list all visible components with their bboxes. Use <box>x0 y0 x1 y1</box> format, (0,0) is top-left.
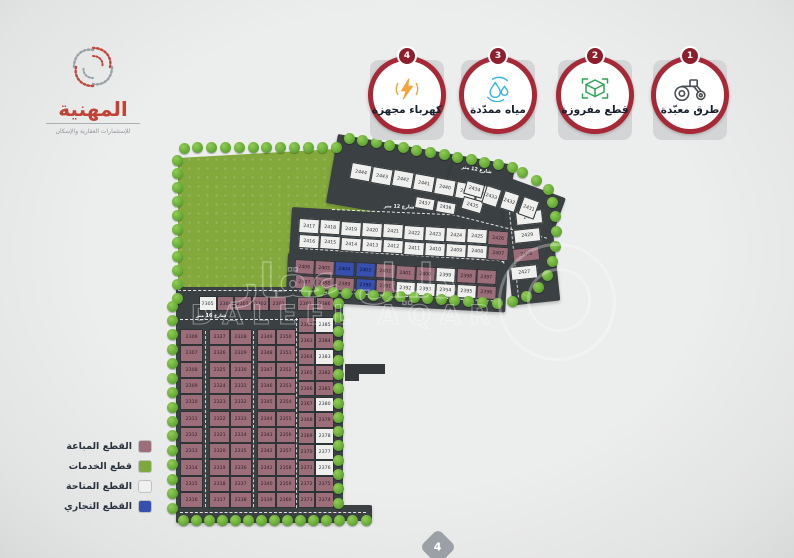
commercial-color-chip <box>138 500 152 513</box>
plot-number: 2397 <box>480 274 492 279</box>
tree-icon <box>331 142 342 153</box>
plot-number: 2357 <box>280 449 292 454</box>
tree-icon <box>333 469 344 480</box>
tree-icon <box>507 162 518 173</box>
plot-number: 2314 <box>186 465 198 470</box>
plot-2362[interactable]: 2362 <box>298 317 315 333</box>
plot-2338[interactable]: 2338 <box>230 492 252 508</box>
plot-number: 2349 <box>261 335 273 340</box>
plot-number: 2358 <box>280 465 292 470</box>
plot-number: 2373 <box>301 497 313 502</box>
tree-icon <box>282 515 293 526</box>
plot-2425[interactable]: 2425 <box>466 228 488 244</box>
tree-icon <box>333 412 344 423</box>
plot-number: 2428 <box>520 251 532 257</box>
tree-icon <box>439 149 450 160</box>
tree-icon <box>230 515 241 526</box>
tree-icon <box>382 291 393 302</box>
plot-number: 2315 <box>186 481 198 486</box>
plot-number: 2336 <box>235 465 247 470</box>
plot-2314[interactable]: 2314 <box>180 459 203 475</box>
plot-number: 2364 <box>301 354 313 359</box>
plot-2413[interactable]: 2413 <box>361 238 383 253</box>
plot-2348[interactable]: 2348 <box>257 345 276 361</box>
plot-number: 2418 <box>324 225 336 230</box>
plot-2374[interactable]: 2374 <box>315 492 334 508</box>
plot-number: 2335 <box>235 449 247 454</box>
tree-icon <box>517 167 528 178</box>
plot-number: 2370 <box>301 450 313 455</box>
plot-2311[interactable]: 2311 <box>180 411 203 427</box>
tree-icon <box>167 474 178 485</box>
plot-2428[interactable]: 2428 <box>512 246 540 263</box>
tree-icon <box>533 282 544 293</box>
plot-2385[interactable]: 2385 <box>315 317 334 333</box>
plot-2333[interactable]: 2333 <box>230 411 252 427</box>
plot-2354[interactable]: 2354 <box>276 394 296 410</box>
plot-number: 2354 <box>280 400 292 405</box>
plot-number: 2433 <box>485 192 498 200</box>
plot-number: 2327 <box>214 335 226 340</box>
plot-number: 2405 <box>319 265 331 270</box>
plot-number: 2442 <box>397 176 410 183</box>
plot-2366[interactable]: 2366 <box>298 381 315 397</box>
tree-icon <box>357 135 368 146</box>
plot-2347[interactable]: 2347 <box>257 362 276 378</box>
water-drops-icon <box>480 76 516 102</box>
plot-2317[interactable]: 2317 <box>209 492 230 508</box>
tree-icon <box>550 211 561 222</box>
plot-number: 2419 <box>345 226 357 231</box>
plot-2383[interactable]: 2383 <box>315 349 334 365</box>
plot-number: 2416 <box>303 239 315 244</box>
plot-2407[interactable]: 2407 <box>487 246 509 261</box>
badge-surveyed-plots: 2 قطع مفروزة <box>556 52 634 144</box>
plot-number: 2324 <box>214 384 226 389</box>
tree-icon <box>172 210 183 221</box>
plot-number: 2393 <box>420 286 432 291</box>
plot-number: 2420 <box>366 227 378 232</box>
plot-number: 2331 <box>235 384 247 389</box>
plot-2376[interactable]: 2376 <box>315 460 334 476</box>
plot-number: 2441 <box>418 180 431 187</box>
plot-number: 2347 <box>261 367 273 372</box>
plot-2368[interactable]: 2368 <box>298 412 315 428</box>
legend-label: القطع المتاحة <box>66 481 132 492</box>
plot-2346[interactable]: 2346 <box>257 378 276 394</box>
plot-2419[interactable]: 2419 <box>340 221 362 237</box>
electricity-bolt-icon <box>389 76 425 102</box>
plot-2418[interactable]: 2418 <box>319 219 341 235</box>
plot-2441[interactable]: 2441 <box>412 173 436 193</box>
badge-number: 4 <box>399 48 415 64</box>
legend-item-available: القطع المتاحة <box>26 480 152 493</box>
tree-icon <box>547 256 558 267</box>
plot-2324[interactable]: 2324 <box>209 378 230 394</box>
tree-icon <box>172 196 183 207</box>
badge-label: مياه ممدّدة <box>470 104 526 116</box>
plot-2342[interactable]: 2342 <box>257 443 276 459</box>
plot-number: 2302 <box>255 301 267 306</box>
plot-number: 2417 <box>303 223 315 228</box>
plot-2339[interactable]: 2339 <box>257 492 276 508</box>
plot-number: 2317 <box>214 498 226 503</box>
plot-2420[interactable]: 2420 <box>361 222 383 238</box>
plot-2399[interactable]: 2399 <box>436 267 457 283</box>
plot-2345[interactable]: 2345 <box>257 394 276 410</box>
plot-2329[interactable]: 2329 <box>230 345 252 361</box>
plot-number: 2321 <box>214 433 226 438</box>
plot-2306[interactable]: 2306 <box>180 329 203 345</box>
plot-2411[interactable]: 2411 <box>403 241 425 256</box>
road-roller-icon <box>672 76 708 102</box>
plot-2337[interactable]: 2337 <box>230 476 252 492</box>
plot-number: 2326 <box>214 351 226 356</box>
plot-number: 2337 <box>235 481 247 486</box>
plot-number: 2348 <box>261 351 273 356</box>
plot-number: 2403 <box>359 268 371 273</box>
plot-2355[interactable]: 2355 <box>276 411 296 427</box>
tree-icon <box>543 184 554 195</box>
plot-2444[interactable]: 2444 <box>349 162 373 182</box>
tree-icon <box>492 298 503 309</box>
plot-number: 2310 <box>186 400 198 405</box>
plot-2301[interactable]: 2301 <box>269 296 287 311</box>
plot-2364[interactable]: 2364 <box>298 349 315 365</box>
plot-2322[interactable]: 2322 <box>209 411 230 427</box>
tree-icon <box>172 265 183 276</box>
plot-2353[interactable]: 2353 <box>276 378 296 394</box>
tree-icon <box>167 430 178 441</box>
plot-number: 2340 <box>261 481 273 486</box>
tree-icon <box>333 440 344 451</box>
plot-2303[interactable]: 2303 <box>234 296 252 311</box>
plot-number: 2431 <box>522 204 535 212</box>
tree-icon <box>355 289 366 300</box>
page-number: 4 <box>434 541 442 554</box>
tree-icon <box>333 355 344 366</box>
plot-2397[interactable]: 2397 <box>476 269 497 285</box>
tree-icon <box>531 175 542 186</box>
plot-number: 2365 <box>301 370 313 375</box>
badge-label: طرق معبّدة <box>661 104 719 116</box>
tree-icon <box>477 297 488 308</box>
plot-number: 2322 <box>214 416 226 421</box>
tree-icon <box>172 251 183 262</box>
plot-number: 2429 <box>521 233 533 239</box>
badge-electricity: 4 كهرباء مجهزة <box>368 52 446 144</box>
tree-icon <box>333 398 344 409</box>
plot-number: 2427 <box>518 270 530 276</box>
plot-2307[interactable]: 2307 <box>180 345 203 361</box>
tree-icon <box>167 358 178 369</box>
tree-icon <box>466 154 477 165</box>
plot-2315[interactable]: 2315 <box>180 476 203 492</box>
plot-2367[interactable]: 2367 <box>298 397 315 413</box>
plot-2412[interactable]: 2412 <box>382 239 404 254</box>
plot-2404[interactable]: 2404 <box>335 261 356 277</box>
plot-2312[interactable]: 2312 <box>180 427 203 443</box>
tree-icon <box>248 142 259 153</box>
tree-icon <box>333 383 344 394</box>
plot-2318[interactable]: 2318 <box>209 476 230 492</box>
plot-2398[interactable]: 2398 <box>456 268 477 284</box>
tree-icon <box>167 488 178 499</box>
plot-2426[interactable]: 2426 <box>487 230 509 246</box>
plot-number: 2309 <box>186 384 198 389</box>
plot-2341[interactable]: 2341 <box>257 459 276 475</box>
plot-number: 2334 <box>235 433 247 438</box>
tree-icon <box>269 515 280 526</box>
plot-number: 2330 <box>235 367 247 372</box>
plot-2357[interactable]: 2357 <box>276 443 296 459</box>
plot-2422[interactable]: 2422 <box>403 225 425 241</box>
plot-2316[interactable]: 2316 <box>180 492 203 508</box>
badge-number: 3 <box>490 48 506 64</box>
plot-number: 2369 <box>301 434 313 439</box>
plot-number: 2389 <box>339 282 351 287</box>
plot-2414[interactable]: 2414 <box>340 237 362 252</box>
street-centerline <box>205 331 206 507</box>
plot-2327[interactable]: 2327 <box>209 329 230 345</box>
plot-2423[interactable]: 2423 <box>424 226 446 242</box>
plot-2340[interactable]: 2340 <box>257 476 276 492</box>
tree-icon <box>192 142 203 153</box>
plot-number: 2372 <box>301 482 313 487</box>
plot-2365[interactable]: 2365 <box>298 365 315 381</box>
plot-2400[interactable]: 2400 <box>415 266 436 282</box>
plot-2410[interactable]: 2410 <box>424 242 446 257</box>
plot-2360[interactable]: 2360 <box>276 492 296 508</box>
plot-2361[interactable]: 2361 <box>297 297 315 311</box>
plot-number: 2384 <box>319 338 331 343</box>
plot-number: 2341 <box>261 465 273 470</box>
tree-icon <box>333 483 344 494</box>
plot-2415[interactable]: 2415 <box>319 235 341 250</box>
plot-2328[interactable]: 2328 <box>230 329 252 345</box>
plot-number: 2366 <box>301 386 313 391</box>
plot-number: 2444 <box>355 169 368 176</box>
plot-number: 2379 <box>319 418 331 423</box>
plot-number: 2344 <box>261 416 273 421</box>
plot-2372[interactable]: 2372 <box>298 476 315 492</box>
tree-icon <box>217 515 228 526</box>
plot-2310[interactable]: 2310 <box>180 394 203 410</box>
plot-2380[interactable]: 2380 <box>315 397 334 413</box>
plot-2403[interactable]: 2403 <box>355 262 376 278</box>
tree-icon <box>344 133 355 144</box>
master-plan-page: المهنية للإستثمارات العقارية والإسكان 1 … <box>0 0 794 558</box>
company-logo: المهنية للإستثمارات العقارية والإسكان <box>38 40 148 135</box>
plot-2371[interactable]: 2371 <box>298 460 315 476</box>
legend-item-sold: القطع المباعة <box>26 440 152 453</box>
tree-icon <box>167 459 178 470</box>
plot-number: 2301 <box>272 301 284 306</box>
tree-icon <box>167 503 178 514</box>
plot-number: 2394 <box>440 288 452 293</box>
tree-icon <box>463 296 474 307</box>
plot-number: 2350 <box>280 335 292 340</box>
plot-2402[interactable]: 2402 <box>375 263 396 279</box>
plot-2313[interactable]: 2313 <box>180 443 203 459</box>
tree-icon <box>167 445 178 456</box>
plot-number: 2413 <box>366 243 378 248</box>
plot-number: 2320 <box>214 449 226 454</box>
plot-number: 2356 <box>280 433 292 438</box>
street-centerline <box>178 290 292 291</box>
tree-icon <box>172 224 183 235</box>
plot-2424[interactable]: 2424 <box>445 227 467 243</box>
plot-number: 2411 <box>408 245 420 250</box>
plot-2320[interactable]: 2320 <box>209 443 230 459</box>
plot-2334[interactable]: 2334 <box>230 427 252 443</box>
plot-number: 2380 <box>319 402 331 407</box>
plot-2302[interactable]: 2302 <box>252 296 270 311</box>
plot-2344[interactable]: 2344 <box>257 411 276 427</box>
plot-2416[interactable]: 2416 <box>298 234 320 249</box>
tree-icon <box>361 515 372 526</box>
plot-2308[interactable]: 2308 <box>180 362 203 378</box>
plot-2405[interactable]: 2405 <box>314 260 335 276</box>
plot-2330[interactable]: 2330 <box>230 362 252 378</box>
plot-number: 2424 <box>450 233 462 238</box>
plot-2384[interactable]: 2384 <box>315 333 334 349</box>
plot-2421[interactable]: 2421 <box>382 223 404 239</box>
plot-2326[interactable]: 2326 <box>209 345 230 361</box>
tree-icon <box>295 515 306 526</box>
plot-2417[interactable]: 2417 <box>298 218 320 234</box>
tree-icon <box>550 241 561 252</box>
tree-icon <box>317 142 328 153</box>
plot-2375[interactable]: 2375 <box>315 476 334 492</box>
plot-number: 2375 <box>319 482 331 487</box>
plot-2401[interactable]: 2401 <box>395 265 416 281</box>
plot-2386[interactable]: 2386 <box>316 297 334 311</box>
tree-icon <box>167 373 178 384</box>
tree-icon <box>452 152 463 163</box>
plot-2443[interactable]: 2443 <box>370 166 394 186</box>
plot-number: 2440 <box>439 184 452 191</box>
plot-2369[interactable]: 2369 <box>298 428 315 444</box>
plot-number: 2308 <box>186 367 198 372</box>
legend-label: قطع الخدمات <box>69 461 132 472</box>
entrance-marker <box>345 364 359 381</box>
badge-number: 1 <box>682 48 698 64</box>
tree-icon <box>551 226 562 237</box>
plot-number: 2323 <box>214 400 226 405</box>
plot-number: 2392 <box>400 285 412 290</box>
tree-icon <box>167 402 178 413</box>
plot-2358[interactable]: 2358 <box>276 459 296 475</box>
plot-number: 2374 <box>319 497 331 502</box>
plot-2349[interactable]: 2349 <box>257 329 276 345</box>
plot-2350[interactable]: 2350 <box>276 329 296 345</box>
plot-number: 2408 <box>471 249 483 254</box>
tree-icon <box>289 142 300 153</box>
plot-2304[interactable]: 2304 <box>217 296 235 311</box>
plot-2325[interactable]: 2325 <box>209 362 230 378</box>
tree-icon <box>507 296 518 307</box>
plot-2309[interactable]: 2309 <box>180 378 203 394</box>
badge-circle: 2 قطع مفروزة <box>556 56 634 134</box>
plot-2409[interactable]: 2409 <box>445 243 467 258</box>
plot-number: 2421 <box>387 229 399 234</box>
plot-2370[interactable]: 2370 <box>298 444 315 460</box>
badge-circle: 1 طرق معبّدة <box>651 56 729 134</box>
plot-2440[interactable]: 2440 <box>433 177 457 197</box>
plot-number: 2355 <box>280 416 292 421</box>
plot-2321[interactable]: 2321 <box>209 427 230 443</box>
plot-number: 2307 <box>186 351 198 356</box>
plot-2408[interactable]: 2408 <box>466 244 488 259</box>
plot-2352[interactable]: 2352 <box>276 362 296 378</box>
badge-paved-roads: 1 طرق معبّدة <box>651 52 729 144</box>
tree-icon <box>275 142 286 153</box>
tree-icon <box>493 159 504 170</box>
tree-icon <box>547 197 558 208</box>
plot-2373[interactable]: 2373 <box>298 492 315 508</box>
plot-2379[interactable]: 2379 <box>315 412 334 428</box>
plot-2356[interactable]: 2356 <box>276 427 296 443</box>
plot-2331[interactable]: 2331 <box>230 378 252 394</box>
tree-icon <box>321 515 332 526</box>
plot-number: 2432 <box>503 197 516 205</box>
tree-icon <box>167 329 178 340</box>
tree-icon <box>220 142 231 153</box>
legend-label: القطع التجاري <box>64 501 132 512</box>
plot-number: 2359 <box>280 481 292 486</box>
plot-number: 2436 <box>440 204 453 211</box>
plot-2382[interactable]: 2382 <box>315 365 334 381</box>
tree-icon <box>256 515 267 526</box>
plot-2359[interactable]: 2359 <box>276 476 296 492</box>
tree-icon <box>261 142 272 153</box>
legend-item-commercial: القطع التجاري <box>26 500 152 513</box>
tree-icon <box>206 142 217 153</box>
plot-2319[interactable]: 2319 <box>209 459 230 475</box>
legend-item-services: قطع الخدمات <box>26 460 152 473</box>
plot-2363[interactable]: 2363 <box>298 333 315 349</box>
badge-label: قطع مفروزة <box>561 104 628 116</box>
plot-2332[interactable]: 2332 <box>230 394 252 410</box>
plot-number: 2306 <box>186 335 198 340</box>
plot-number: 2361 <box>300 302 312 307</box>
plot-2343[interactable]: 2343 <box>257 427 276 443</box>
tree-icon <box>333 298 344 309</box>
tree-icon <box>234 142 245 153</box>
plot-2336[interactable]: 2336 <box>230 459 252 475</box>
tree-icon <box>301 286 312 297</box>
plot-number: 2404 <box>339 267 351 272</box>
tree-icon <box>167 301 178 312</box>
plot-number: 2415 <box>324 240 336 245</box>
tree-icon <box>172 168 183 179</box>
plot-2406[interactable]: 2406 <box>294 259 315 275</box>
badge-number: 2 <box>587 48 603 64</box>
plot-2351[interactable]: 2351 <box>276 345 296 361</box>
plot-2323[interactable]: 2323 <box>209 394 230 410</box>
plot-number: 2318 <box>214 481 226 486</box>
plot-2378[interactable]: 2378 <box>315 428 334 444</box>
plot-2335[interactable]: 2335 <box>230 443 252 459</box>
plot-2305[interactable]: 2305 <box>199 296 217 311</box>
plot-2381[interactable]: 2381 <box>315 381 334 397</box>
plot-number: 2352 <box>280 367 292 372</box>
plot-2377[interactable]: 2377 <box>315 444 334 460</box>
plot-number: 2443 <box>376 173 389 180</box>
plot-number: 2312 <box>186 433 198 438</box>
plot-number: 2409 <box>450 248 462 253</box>
